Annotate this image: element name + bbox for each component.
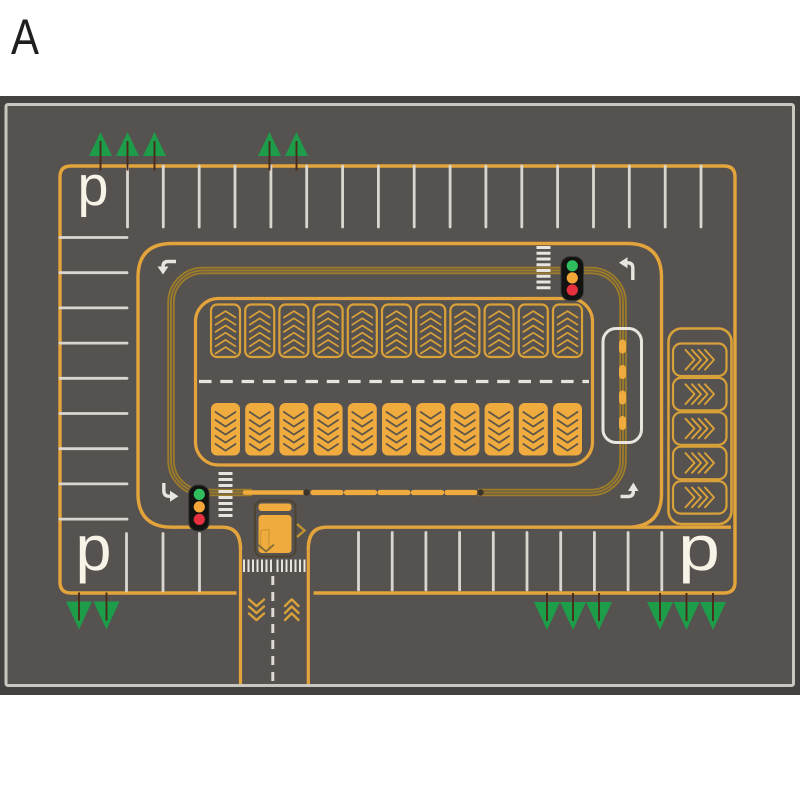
svg-text:p: p (78, 154, 109, 218)
svg-text:A: A (11, 9, 40, 65)
svg-text:p: p (76, 512, 112, 584)
